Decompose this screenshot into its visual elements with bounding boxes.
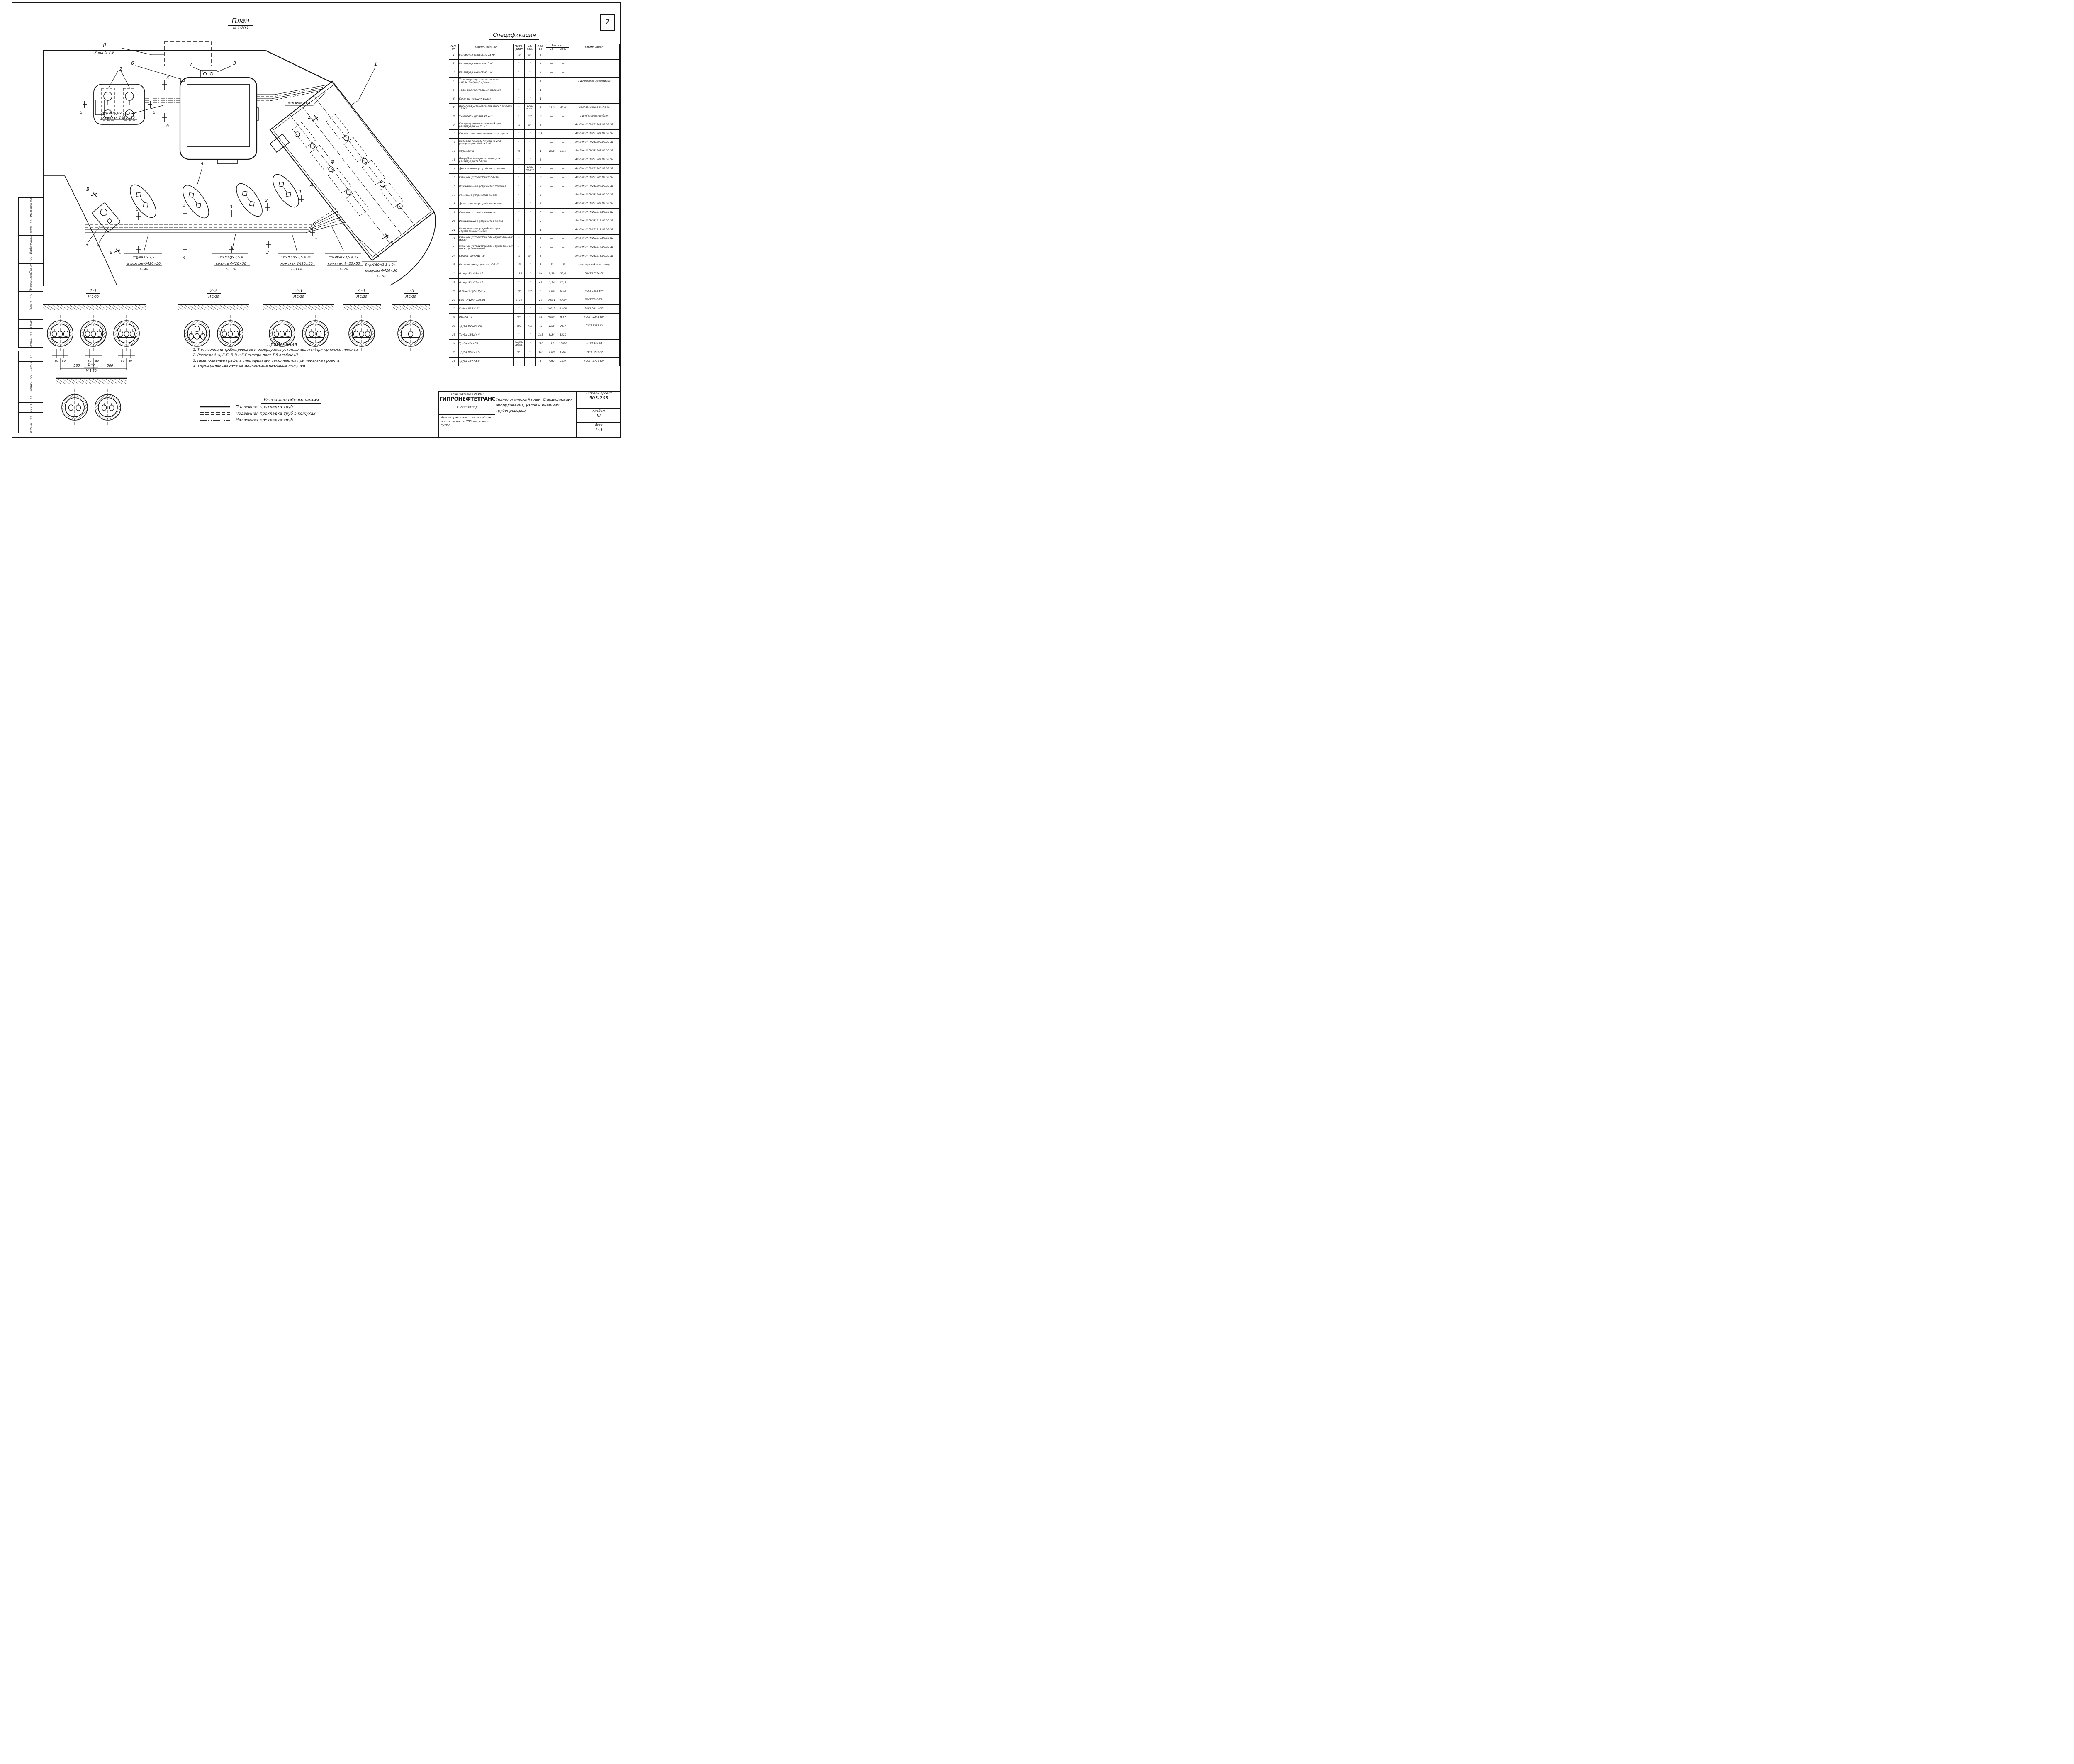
spec-cell: 9 bbox=[449, 121, 459, 130]
spec-cell: 12 bbox=[449, 147, 459, 156]
stamp-role: Ст.инженер bbox=[19, 338, 43, 347]
spec-cell: 4,62 bbox=[546, 357, 557, 366]
section-marker-b-right bbox=[148, 101, 152, 108]
spec-cell: — bbox=[557, 208, 569, 217]
spec-cell: Труба 420×50 bbox=[458, 340, 514, 348]
spec-cell: 8 bbox=[536, 77, 546, 86]
spec-cell: 320 bbox=[536, 348, 546, 357]
spec-cell: шт bbox=[525, 287, 536, 296]
spec-cell: 1 bbox=[449, 51, 459, 60]
spec-cell: 14,0 bbox=[557, 357, 569, 366]
spec-cell: з-д «Старорусприбор» bbox=[569, 112, 619, 121]
spec-cell: — bbox=[557, 60, 569, 68]
marker-1a: 1 bbox=[299, 190, 302, 195]
spec-row: 27Отвод 90°-57×3,5″″490,5426,5″ bbox=[449, 278, 620, 287]
spec-cell: Топливосмесительная колонка bbox=[458, 86, 514, 95]
col-name: Наименование bbox=[458, 44, 514, 51]
spec-cell: 110 bbox=[536, 340, 546, 348]
spec-row: 26Отвод 90°-89×3,5ст20″241,3933,4ГОСТ 17… bbox=[449, 270, 620, 278]
spec-cell: Патрубок замерного люка для резервуара т… bbox=[458, 156, 514, 165]
spec-cell: 1,04 bbox=[546, 287, 557, 296]
spec-cell: ″ bbox=[525, 130, 536, 139]
spec-row: 28Фланец Ду50 Ру2,5стшт61,046,24ГОСТ 125… bbox=[449, 287, 620, 296]
spec-cell: ″ bbox=[514, 182, 525, 191]
spec-cell: 8 bbox=[536, 51, 546, 60]
section-figure-6-6: 6-6М 1:20 bbox=[54, 361, 129, 429]
label-7tr-1: 7тр.Ф60×3,5 в 2х bbox=[328, 255, 358, 259]
service-building bbox=[180, 78, 258, 164]
spec-row: 25Огневой преградитель ОП-50сб″3515Армав… bbox=[449, 261, 620, 270]
spec-cell: ст bbox=[514, 121, 525, 130]
stamp-person: Инженер∿∿ЕфимовПирыкелова bbox=[19, 273, 43, 310]
marker-1b: 1 bbox=[315, 238, 317, 243]
spec-row: 14Дыхательное устройство топлива″ком-пле… bbox=[449, 165, 620, 173]
project-number: 503-203 bbox=[577, 395, 621, 401]
spec-cell: — bbox=[557, 112, 569, 121]
spec-cell: 6,24 bbox=[557, 287, 569, 296]
spec-row: 17Замерное устройство масла″″6——Альбом I… bbox=[449, 191, 620, 200]
spec-cell: ″ bbox=[525, 348, 536, 357]
spec-cell: 15 bbox=[557, 261, 569, 270]
spec-cell: Указатель уровня УДУ-10 bbox=[458, 112, 514, 121]
spec-row: 31Шайба 12ст0″240,0050,12ГОСТ 11371-68* bbox=[449, 314, 620, 322]
spec-cell: 33 bbox=[449, 331, 459, 340]
section-title: 5-5 bbox=[407, 288, 414, 293]
marker-v2: В bbox=[110, 250, 113, 255]
spec-cell: 24 bbox=[536, 314, 546, 322]
spec-cell: ″ bbox=[514, 226, 525, 235]
spec-cell: Отвод 90°-57×3,5 bbox=[458, 278, 514, 287]
spec-cell: — bbox=[546, 200, 557, 208]
stamp-signature: ∿∿ bbox=[19, 292, 43, 301]
spec-cell: — bbox=[557, 191, 569, 200]
spec-cell: ″ bbox=[514, 60, 525, 68]
project-cell: Типовой проект 503-203 bbox=[577, 392, 621, 409]
spec-cell: ″ bbox=[525, 156, 536, 165]
spec-cell: ″ bbox=[525, 357, 536, 366]
spec-cell: Всасывающее устройство масла bbox=[458, 217, 514, 226]
section-scale: М 1:20 bbox=[86, 369, 97, 372]
stamp-signature: ∿∿ bbox=[19, 372, 43, 382]
spec-cell: Топливораздаточная колонка «НАРА-2» Q=40… bbox=[458, 77, 514, 86]
spec-cell: Труба Ф88,5×4 bbox=[458, 331, 514, 340]
drawing-sheet: 7 План М 1:200 bbox=[0, 0, 625, 441]
legend-line-sample bbox=[200, 418, 230, 423]
spec-cell: 8,34 bbox=[546, 331, 557, 340]
col-note: Примечание bbox=[569, 44, 619, 51]
spec-cell: сб bbox=[514, 51, 525, 60]
spec-row: 10Крышка технологического колодца″″13——А… bbox=[449, 130, 620, 139]
spec-cell: ″ bbox=[514, 103, 525, 112]
spec-cell: Альбом IV ТМ263207.00.00 СБ bbox=[569, 182, 619, 191]
col-weight-tot: Общ bbox=[557, 48, 569, 51]
legend-title: Условные обозначения bbox=[200, 397, 382, 403]
spec-cell: 4,88 bbox=[546, 348, 557, 357]
spec-cell: 34 bbox=[449, 340, 459, 348]
stamp-person: Гл.инж.пр-та∿∿ bbox=[19, 412, 43, 433]
spec-cell: Дыхательное устройство масла bbox=[458, 200, 514, 208]
project-label: Типовой проект bbox=[577, 392, 621, 395]
spec-title: Спецификация bbox=[469, 32, 560, 39]
spec-cell: 35 bbox=[449, 348, 459, 357]
pipe-label-leaders bbox=[144, 225, 379, 257]
spec-cell: 19,6 bbox=[546, 147, 557, 156]
spec-cell: ″ bbox=[514, 68, 525, 77]
spec-row: 1Резервуар емкостью 25 м³сбшт8—— bbox=[449, 51, 620, 60]
stamp-signature: ∿∿ bbox=[19, 329, 43, 338]
spec-cell: ст3 bbox=[514, 322, 525, 331]
spec-cell: ″ bbox=[525, 147, 536, 156]
section-title: 6-6 bbox=[88, 362, 95, 367]
fuel-islands bbox=[125, 170, 304, 222]
plan-drawing: II Зона А, Г-Б 2 Б Б 6 6 6 7 3 1 А А Д Д… bbox=[43, 38, 441, 286]
spec-cell: 0,12 bbox=[557, 314, 569, 322]
col-num: №№ пп bbox=[449, 44, 459, 51]
spec-cell: 5 bbox=[536, 208, 546, 217]
spec-cell: 33,4 bbox=[557, 270, 569, 278]
section-title: 2-2 bbox=[210, 288, 217, 293]
spec-cell: сб bbox=[514, 261, 525, 270]
spec-cell: 0,005 bbox=[546, 314, 557, 322]
spec-cell: 1 bbox=[536, 147, 546, 156]
spec-row: 33Труба Ф88,5×4″″1458,341210″ bbox=[449, 331, 620, 340]
stamp-person: Нач.отд-а∿∿ bbox=[19, 392, 43, 412]
spec-cell: — bbox=[546, 165, 557, 173]
roof-columns bbox=[201, 70, 217, 78]
road-arc bbox=[43, 176, 117, 285]
page-number-box: 7 bbox=[600, 14, 615, 31]
spec-cell: Всасывающее устройство топлива bbox=[458, 182, 514, 191]
spec-cell: ″ bbox=[514, 208, 525, 217]
spec-cell: Альбом IV ТМ263202.00.00 СБ bbox=[569, 139, 619, 147]
section-figure-5-5: 5-5М 1:20 bbox=[390, 287, 431, 355]
spec-cell: — bbox=[557, 235, 569, 243]
section-title: 1-1 bbox=[90, 288, 97, 293]
spec-row: 34Труба 420×50желе-зобет.″11012713970ТУ-… bbox=[449, 340, 620, 348]
spec-cell: 6 bbox=[536, 287, 546, 296]
callout-7-leader bbox=[193, 67, 203, 71]
spec-cell: ″ bbox=[525, 296, 536, 304]
spec-cell: Труба Ф57×3,5 bbox=[458, 357, 514, 366]
spec-cell: 6 bbox=[536, 200, 546, 208]
marker-3a: 3 bbox=[230, 205, 232, 209]
spec-cell: ст0 bbox=[514, 314, 525, 322]
spec-cell: Альбом IV ТМ263209.00.00 СБ bbox=[569, 200, 619, 208]
album-number: III bbox=[577, 413, 621, 418]
spec-cell: ком-плект bbox=[525, 103, 536, 112]
spec-cell: 127 bbox=[546, 340, 557, 348]
label-9tr-3: ℓ=7м bbox=[376, 275, 385, 278]
spec-cell: — bbox=[557, 252, 569, 261]
spec-cell: Альбом IV ТМ263203.00.00 СБ bbox=[569, 147, 619, 156]
spec-cell: ″ bbox=[525, 270, 536, 278]
spec-cell: 8 bbox=[536, 173, 546, 182]
legend-label: Подземная прокладка труб bbox=[236, 405, 293, 409]
spec-cell: 28 bbox=[449, 287, 459, 296]
spec-cell: ″ bbox=[514, 331, 525, 340]
spec-cell: Альбом IV ТМ263208.00.00 СБ bbox=[569, 191, 619, 200]
note-item: 2. Разрезы А-А, Б-Б, В-В и Г-Г смотри ли… bbox=[193, 353, 371, 358]
label-8tr: 8тр.Ф88,5×4 bbox=[288, 101, 310, 105]
callout-2-leader bbox=[108, 71, 130, 88]
spec-cell: Огневой преградитель ОП-50 bbox=[458, 261, 514, 270]
spec-cell: — bbox=[546, 226, 557, 235]
section-marker-a-top bbox=[312, 115, 318, 121]
label-7tr-2: кожухах Ф420×50 bbox=[328, 262, 360, 265]
stamp-role: Гл.специал. bbox=[19, 382, 43, 392]
spec-cell: Отвод 90°-89×3,5 bbox=[458, 270, 514, 278]
spec-header: №№ пп Наименование Мате-риал Ед. изм. Ко… bbox=[449, 44, 620, 51]
spec-cell: Сливное устройство для отработанных масе… bbox=[458, 243, 514, 252]
spec-cell: 24 bbox=[449, 252, 459, 261]
spec-cell bbox=[569, 95, 619, 103]
spec-cell: 6 bbox=[449, 95, 459, 103]
spec-cell: 4 bbox=[536, 60, 546, 68]
spec-cell: Армавирский маш. завод bbox=[569, 261, 619, 270]
spec-cell: Альбом IV ТМ263206.00.00 СБ bbox=[569, 173, 619, 182]
spec-cell: — bbox=[546, 86, 557, 95]
section-marker-6-top bbox=[162, 80, 167, 90]
section-scale: М 1:20 bbox=[356, 295, 367, 299]
album-label: Альбом bbox=[577, 409, 621, 413]
spec-cell: 26,5 bbox=[557, 278, 569, 287]
spec-cell: 1 bbox=[536, 226, 546, 235]
spec-cell: ст20 bbox=[514, 296, 525, 304]
org-cell: Главнефтеснаб РСФСР ГИПРОНЕФТЕТРАНС г. В… bbox=[439, 392, 495, 415]
doc-title: Технологический план. Спецификация обору… bbox=[492, 392, 577, 437]
marker-6b: 6 bbox=[166, 124, 169, 128]
spec-cell: Всасывающее устройство для отработанных … bbox=[458, 226, 514, 235]
spec-cell: 29 bbox=[449, 296, 459, 304]
spec-cell: 8 bbox=[536, 252, 546, 261]
spec-cell: — bbox=[546, 191, 557, 200]
spec-cell: — bbox=[546, 68, 557, 77]
spec-cell: ГОСТ 5915-70* bbox=[569, 304, 619, 313]
spec-cell: ГОСТ 17374-72 bbox=[569, 270, 619, 278]
spec-cell: — bbox=[546, 121, 557, 130]
spec-cell: ″ bbox=[569, 331, 619, 340]
spec-cell: ″ bbox=[525, 77, 536, 86]
plan-title-block: План М 1:200 bbox=[207, 17, 274, 30]
callout-2: 2 bbox=[119, 66, 122, 72]
col-weight: Вес в кг bbox=[546, 44, 569, 48]
spec-row: 16Всасывающее устройство топлива″″9——Аль… bbox=[449, 182, 620, 191]
spec-cell: 63.0 bbox=[546, 103, 557, 112]
marker-4a: 4 bbox=[183, 204, 185, 209]
stamp-check-name: Пирыкелова bbox=[19, 273, 43, 282]
spec-cell: шт bbox=[525, 252, 536, 261]
spec-cell: шт bbox=[525, 112, 536, 121]
stamp-signature: ∿∿ bbox=[19, 392, 43, 402]
callout-1: 1 bbox=[374, 61, 377, 67]
spec-cell: 31 bbox=[449, 314, 459, 322]
spec-cell: ст bbox=[514, 287, 525, 296]
stamp-role: Ст.техник bbox=[19, 226, 43, 236]
stamp-check-name: Курылева bbox=[19, 236, 43, 245]
label-1tr-2: в кожухе Ф420×50 bbox=[127, 262, 161, 265]
spec-cell: ″ bbox=[525, 226, 536, 235]
spec-cell: ″ bbox=[525, 208, 536, 217]
spec-cell: Резервуар емкостью 3 м³ bbox=[458, 68, 514, 77]
spec-cell: 18 bbox=[449, 200, 459, 208]
org-dept: Главнефтеснаб РСФСР bbox=[439, 392, 495, 396]
legend-label: Надземная прокладка труб bbox=[236, 418, 293, 423]
label-1tr-1: 1тр.Ф60×3,5 bbox=[132, 255, 154, 259]
spec-row: 18Дыхательное устройство масла″″6——Альбо… bbox=[449, 200, 620, 208]
spec-cell: — bbox=[546, 173, 557, 182]
section-markers-bundle bbox=[136, 195, 315, 253]
spec-cell: — bbox=[557, 139, 569, 147]
spec-cell: — bbox=[557, 68, 569, 77]
sheet-label: Лист bbox=[577, 423, 621, 427]
spec-cell: — bbox=[546, 235, 557, 243]
spec-cell: шт bbox=[525, 51, 536, 60]
spec-cell: 6 bbox=[536, 191, 546, 200]
spec-cell: 0,051 bbox=[546, 296, 557, 304]
spec-cell: 15 bbox=[449, 173, 459, 182]
marker-b2: Б bbox=[153, 110, 156, 115]
marker-d1: Д bbox=[331, 159, 334, 164]
tank-yard bbox=[270, 81, 434, 260]
spec-cell: 11 bbox=[449, 139, 459, 147]
plan-scale: М 1:200 bbox=[207, 26, 274, 30]
spec-cell: 24 bbox=[536, 304, 546, 313]
spec-cell: — bbox=[557, 77, 569, 86]
spec-cell: ″ bbox=[525, 278, 536, 287]
spec-cell: — bbox=[546, 60, 557, 68]
spec-cell: Гайка М12.5.01 bbox=[458, 304, 514, 313]
spec-cell: 24 bbox=[536, 270, 546, 278]
spec-cell: ″ bbox=[514, 139, 525, 147]
callout-3-leader bbox=[217, 66, 232, 72]
spec-cell: ″ bbox=[525, 191, 536, 200]
spec-cell: 1 bbox=[536, 86, 546, 95]
spec-cell: 19,6 bbox=[557, 147, 569, 156]
zone-name: Зона А, Г-Б bbox=[95, 51, 115, 55]
section-title: 4-4 bbox=[358, 288, 365, 293]
callout-6: 6 bbox=[131, 61, 134, 66]
spec-cell: ″ bbox=[525, 235, 536, 243]
spec-cell: — bbox=[557, 86, 569, 95]
spec-cell: 1 bbox=[536, 95, 546, 103]
spec-cell: 0,017 bbox=[546, 304, 557, 313]
callout-3b: 3 bbox=[85, 242, 88, 248]
spec-cell: Сливное устройство масла bbox=[458, 208, 514, 217]
title-block-left: Главнефтеснаб РСФСР ГИПРОНЕФТЕТРАНС г. В… bbox=[439, 392, 492, 437]
spec-cell: — bbox=[546, 156, 557, 165]
spec-row: 36Труба Ф57×3,5″″34,6214,0ГОСТ 10704-63* bbox=[449, 357, 620, 366]
callout-5: 5 bbox=[97, 243, 100, 248]
spec-cell: 4 bbox=[449, 77, 459, 86]
spec-cell: Альбом IV ТМ263213.00.00 СБ bbox=[569, 235, 619, 243]
spec-cell: 17 bbox=[449, 191, 459, 200]
spec-cell: Альбом IV ТМ263218.00.00 СБ bbox=[569, 252, 619, 261]
spec-cell bbox=[569, 86, 619, 95]
spec-cell: Колодец технологический для резервуаров … bbox=[458, 139, 514, 147]
label-4tr-2: кожухах Ф420×50 bbox=[102, 116, 135, 119]
spec-cell: ″ bbox=[525, 314, 536, 322]
spec-cell: ″ bbox=[514, 200, 525, 208]
spec-cell: — bbox=[557, 243, 569, 252]
spec-cell: 2 bbox=[449, 60, 459, 68]
spec-cell: 25 bbox=[449, 261, 459, 270]
stamp-role: Нач.отд-а bbox=[19, 402, 43, 412]
spec-cell: Дыхательное устройство топлива bbox=[458, 165, 514, 173]
section-scale: М 1:20 bbox=[88, 295, 99, 299]
spec-cell: ″ bbox=[514, 357, 525, 366]
spec-cell: ГОСТ 10704-63* bbox=[569, 357, 619, 366]
label-1tr-3: ℓ=9м bbox=[139, 268, 148, 271]
section-scale: М 1:20 bbox=[405, 295, 416, 299]
spec-cell: Альбом IV ТМ263214.00.00 СБ bbox=[569, 243, 619, 252]
stamp-person: Нач.сектора∿∿ bbox=[19, 351, 43, 372]
section-marker-a-bottom bbox=[382, 233, 388, 239]
site-boundary bbox=[43, 51, 333, 286]
spec-cell: 24 bbox=[536, 296, 546, 304]
section-scale: М 1:20 bbox=[293, 295, 304, 299]
spec-cell: 1562 bbox=[557, 348, 569, 357]
spec-cell: ком-плект bbox=[525, 165, 536, 173]
spec-cell: 27 bbox=[449, 278, 459, 287]
spec-row: 13Патрубок замерного люка для резервуара… bbox=[449, 156, 620, 165]
spec-cell: 13970 bbox=[557, 340, 569, 348]
spec-cell: 74,7 bbox=[557, 322, 569, 331]
spec-cell: 0,724 bbox=[557, 296, 569, 304]
col-qty: Кол-во bbox=[536, 44, 546, 51]
spec-cell: 13 bbox=[449, 156, 459, 165]
spec-cell: 19 bbox=[449, 208, 459, 217]
spec-row: 30Гайка М12.5.01″″240,0170,408ГОСТ 5915-… bbox=[449, 304, 620, 313]
spec-cell: 2 bbox=[536, 68, 546, 77]
spec-cell: 16 bbox=[449, 182, 459, 191]
callout-4: 4 bbox=[201, 161, 204, 166]
spec-cell: Крышка технологического колодца bbox=[458, 130, 514, 139]
spec-cell: 8 bbox=[449, 112, 459, 121]
spec-cell: ″ bbox=[514, 304, 525, 313]
spec-row: 6Колонка «воздух-вода»″″1—— bbox=[449, 95, 620, 103]
spec-cell: ″ bbox=[525, 340, 536, 348]
spec-cell: — bbox=[557, 182, 569, 191]
marker-v1: В bbox=[86, 187, 90, 192]
spec-row: 9Колодец технологический для резервуара … bbox=[449, 121, 620, 130]
stamp-signature: ∿∿ bbox=[19, 351, 43, 362]
spec-cell: п.м bbox=[525, 322, 536, 331]
title-block-right: Типовой проект 503-203 Альбом III Лист Т… bbox=[577, 392, 621, 437]
marker-5a: 5 bbox=[136, 207, 139, 212]
spec-cell: 1 bbox=[536, 235, 546, 243]
spec-cell: — bbox=[546, 217, 557, 226]
spec-cell: 10 bbox=[449, 130, 459, 139]
spec-cell: Сливное устройство топлива bbox=[458, 173, 514, 182]
spec-cell: ″ bbox=[514, 95, 525, 103]
spec-cell: ″ bbox=[525, 139, 536, 147]
spec-cell: сб bbox=[514, 147, 525, 156]
spec-cell: 21 bbox=[449, 226, 459, 235]
spec-cell: — bbox=[557, 226, 569, 235]
label-4tr-1: 4тр.Ф26,8×2,8 в 2х bbox=[102, 112, 135, 115]
spec-row: 35Труба Ф60×3,5ст3″3204,881562ГОСТ 3262-… bbox=[449, 348, 620, 357]
note-item: 3. Незаполненые графы в спецификации зап… bbox=[193, 359, 371, 363]
spec-cell: Альбом IV ТМ263204.00.00 СБ bbox=[569, 156, 619, 165]
spec-cell: ″ bbox=[525, 68, 536, 77]
spec-row: 11Колодец технологический для резервуаро… bbox=[449, 139, 620, 147]
spec-cell: — bbox=[546, 182, 557, 191]
spec-cell: ″ bbox=[514, 165, 525, 173]
spec-cell: 3 bbox=[536, 357, 546, 366]
spec-cell: 5 bbox=[449, 86, 459, 95]
stamp-name: Косолапов bbox=[19, 319, 43, 328]
org-name: ГИПРОНЕФТЕТРАНС bbox=[439, 396, 495, 402]
